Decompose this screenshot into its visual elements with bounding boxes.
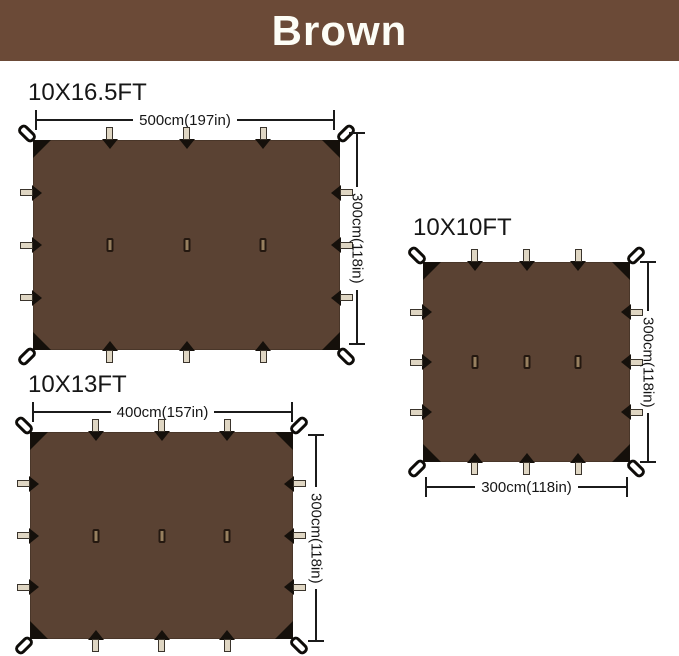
corner-patch xyxy=(30,621,48,639)
corner-patch xyxy=(322,332,340,350)
corner-patch xyxy=(33,332,51,350)
pole-slit-icon xyxy=(158,529,165,543)
dimension-endcap xyxy=(291,402,293,422)
webbing-triangle xyxy=(467,261,483,271)
tie-strap xyxy=(183,127,190,140)
dimension-line xyxy=(315,589,317,640)
webbing-triangle xyxy=(29,579,39,595)
tie-strap xyxy=(410,359,423,366)
size-label-10x13: 10X13FT xyxy=(28,371,127,399)
corner-patch xyxy=(275,621,293,639)
tie-strap xyxy=(17,584,30,591)
tie-strap xyxy=(106,127,113,140)
corner-patch xyxy=(423,262,441,280)
dimension-line xyxy=(647,263,649,311)
tarp-body-10x13 xyxy=(30,432,293,639)
tie-strap xyxy=(575,462,582,475)
webbing-triangle xyxy=(29,476,39,492)
webbing-triangle xyxy=(32,185,42,201)
tie-strap xyxy=(260,127,267,140)
webbing-triangle xyxy=(102,139,118,149)
tie-strap xyxy=(224,639,231,652)
tie-strap xyxy=(575,249,582,262)
tie-strap xyxy=(410,309,423,316)
tie-strap xyxy=(471,249,478,262)
webbing-triangle xyxy=(32,290,42,306)
tie-strap xyxy=(20,189,33,196)
dimension-endcap xyxy=(626,477,628,497)
width-dimension-text: 300cm(118in) xyxy=(475,479,578,496)
tie-strap xyxy=(158,419,165,432)
tie-strap xyxy=(293,532,306,539)
webbing-triangle xyxy=(422,304,432,320)
height-dimension-text: 300cm(118in) xyxy=(349,187,366,290)
height-dimension-10x10: 300cm(118in) xyxy=(638,261,658,463)
tie-strap xyxy=(158,639,165,652)
webbing-triangle xyxy=(255,139,271,149)
pole-slit-icon xyxy=(92,529,99,543)
webbing-triangle xyxy=(219,431,235,441)
dimension-line xyxy=(356,134,358,187)
tie-strap xyxy=(20,294,33,301)
height-dimension-text: 300cm(118in) xyxy=(308,487,325,590)
dimension-line xyxy=(237,119,333,121)
width-dimension-10x10: 300cm(118in) xyxy=(425,477,628,497)
pole-slit-icon xyxy=(224,529,231,543)
webbing-triangle xyxy=(88,431,104,441)
dimension-endcap xyxy=(640,461,656,463)
tie-strap xyxy=(293,584,306,591)
webbing-triangle xyxy=(32,237,42,253)
dimension-line xyxy=(214,411,291,413)
color-name-label: Brown xyxy=(272,7,408,55)
webbing-triangle xyxy=(29,528,39,544)
corner-patch xyxy=(33,140,51,158)
dimension-endcap xyxy=(349,343,365,345)
dimension-line xyxy=(427,486,475,488)
dimension-line xyxy=(315,436,317,487)
dimension-line xyxy=(37,119,133,121)
tarp-body-10x16-5 xyxy=(33,140,340,350)
dimension-endcap xyxy=(308,640,324,642)
corner-patch xyxy=(612,444,630,462)
dimension-endcap xyxy=(333,110,335,130)
tie-strap xyxy=(260,350,267,363)
dimension-line xyxy=(647,413,649,461)
webbing-triangle xyxy=(519,261,535,271)
corner-patch xyxy=(30,432,48,450)
tie-strap xyxy=(523,462,530,475)
tie-strap xyxy=(17,532,30,539)
webbing-triangle xyxy=(422,354,432,370)
dimension-line xyxy=(578,486,626,488)
size-label-10x10: 10X10FT xyxy=(413,214,512,242)
height-dimension-10x16-5: 300cm(118in) xyxy=(347,132,367,345)
pole-slit-icon xyxy=(471,355,478,369)
tie-strap xyxy=(20,242,33,249)
pole-slit-icon xyxy=(183,238,190,252)
tie-strap xyxy=(92,639,99,652)
size-label-10x16-5: 10X16.5FT xyxy=(28,79,147,107)
tie-strap xyxy=(410,409,423,416)
corner-patch xyxy=(322,140,340,158)
tie-strap xyxy=(471,462,478,475)
tie-strap xyxy=(224,419,231,432)
height-dimension-text: 300cm(118in) xyxy=(640,311,657,414)
pole-slit-icon xyxy=(575,355,582,369)
tie-strap xyxy=(523,249,530,262)
webbing-triangle xyxy=(154,431,170,441)
corner-patch xyxy=(612,262,630,280)
webbing-triangle xyxy=(570,261,586,271)
corner-loop-icon xyxy=(335,346,357,368)
tie-strap xyxy=(92,419,99,432)
color-banner: Brown xyxy=(0,0,679,61)
tie-strap xyxy=(17,480,30,487)
dimension-line xyxy=(34,411,111,413)
width-dimension-text: 400cm(157in) xyxy=(111,404,215,421)
tie-strap xyxy=(293,480,306,487)
width-dimension-text: 500cm(197in) xyxy=(133,112,237,129)
dimension-line xyxy=(356,290,358,343)
height-dimension-10x13: 300cm(118in) xyxy=(306,434,326,642)
tie-strap xyxy=(106,350,113,363)
tie-strap xyxy=(183,350,190,363)
corner-patch xyxy=(275,432,293,450)
pole-slit-icon xyxy=(260,238,267,252)
tarp-body-10x10 xyxy=(423,262,630,462)
webbing-triangle xyxy=(422,404,432,420)
webbing-triangle xyxy=(179,139,195,149)
pole-slit-icon xyxy=(106,238,113,252)
corner-patch xyxy=(423,444,441,462)
pole-slit-icon xyxy=(523,355,530,369)
